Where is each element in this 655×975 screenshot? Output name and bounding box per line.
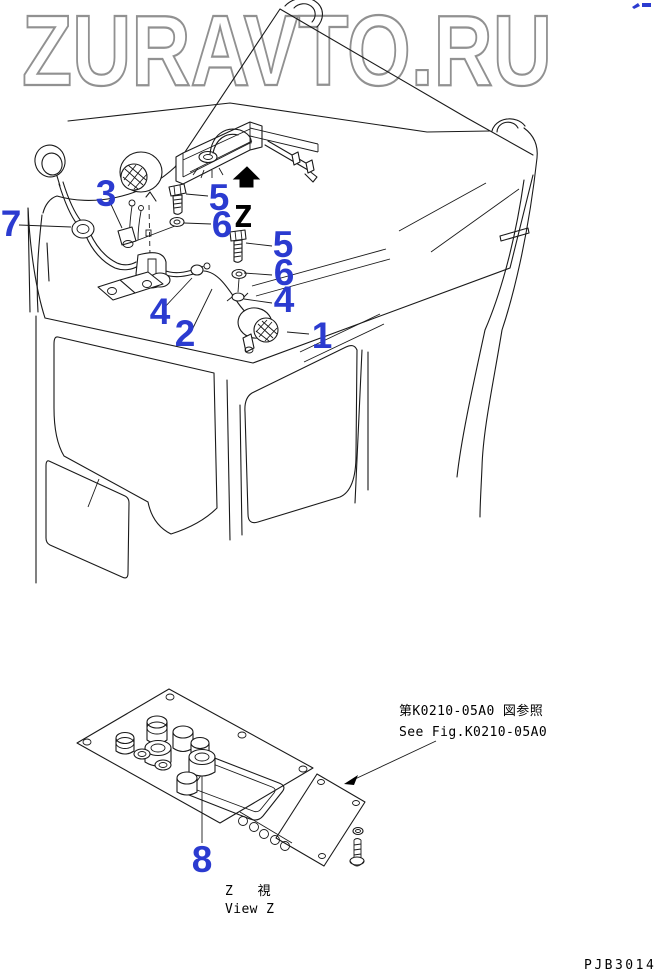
- work-lamp-left: [32, 142, 69, 186]
- view-arrow-label: Z: [234, 200, 252, 235]
- bolt-5a: [169, 184, 186, 214]
- drawing-number: PJB3014: [584, 958, 655, 973]
- reference-note-jp: 第K0210-05A0 図参照: [399, 703, 543, 719]
- callout-1: 1: [312, 315, 333, 356]
- parts-diagram-page: ZURAVTO.RU: [0, 0, 655, 975]
- callout-4b: 4: [274, 279, 295, 320]
- washer-6a: [170, 218, 184, 227]
- washer-6b: [232, 270, 246, 279]
- callout-2: 2: [175, 313, 196, 354]
- view-direction-arrow-icon: [234, 167, 259, 187]
- wire-clamp-4b: [227, 279, 248, 301]
- reference-leader: [344, 741, 436, 785]
- page-corner-mark: [632, 3, 651, 9]
- callout-7: 7: [1, 203, 22, 244]
- view-z-panel: [77, 689, 365, 866]
- callout-6a: 6: [212, 204, 233, 245]
- reference-note-en: See Fig.K0210-05A0: [399, 725, 547, 740]
- wire-clamp-4a: [191, 263, 210, 275]
- work-lamp-1: [235, 305, 278, 353]
- wire-clamp-7: [72, 220, 94, 238]
- bolt-axis-line: [149, 205, 150, 256]
- bracket-part-3: [118, 200, 144, 248]
- watermark-text: ZURAVTO.RU: [22, 0, 552, 107]
- view-caption-en: View Z: [225, 902, 274, 917]
- callout-4a: 4: [150, 291, 171, 332]
- screw-and-washer: [350, 828, 364, 867]
- callout-3: 3: [96, 173, 117, 214]
- callout-8: 8: [192, 839, 213, 880]
- view-caption-jp: Z 視: [225, 884, 271, 899]
